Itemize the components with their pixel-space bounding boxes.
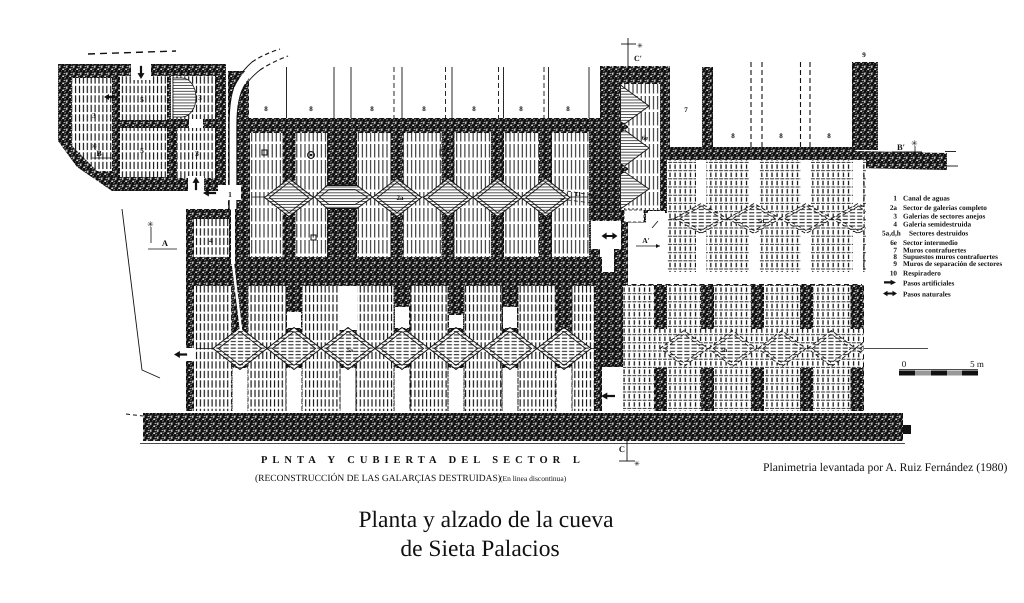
svg-text:8: 8 — [422, 105, 426, 113]
svg-text:8: 8 — [309, 105, 313, 113]
svg-text:Planimetria levantada por A. R: Planimetria levantada por A. Ruiz Fernán… — [763, 461, 1007, 474]
svg-text:Canal de aguas: Canal de aguas — [903, 195, 950, 203]
svg-text:1: 1 — [893, 195, 897, 203]
svg-text:A′: A′ — [642, 236, 650, 245]
svg-text:✳: ✳ — [911, 139, 918, 148]
svg-text:1: 1 — [228, 190, 232, 199]
svg-text:6e: 6e — [642, 135, 648, 142]
svg-text:8: 8 — [827, 132, 831, 140]
svg-text:5: 5 — [140, 95, 144, 104]
svg-text:Galeria semidestruida: Galeria semidestruida — [903, 221, 971, 229]
svg-text:(En linea discontinua): (En linea discontinua) — [500, 474, 567, 483]
svg-text:3: 3 — [195, 149, 199, 158]
svg-text:9: 9 — [893, 260, 897, 268]
svg-text:Sector de galerias completo: Sector de galerias completo — [903, 204, 987, 212]
svg-text:Pasos naturales: Pasos naturales — [903, 291, 951, 299]
svg-text:✳: ✳ — [147, 220, 154, 229]
svg-text:Muros de separación de sectore: Muros de separación de sectores — [903, 260, 1002, 268]
svg-text:Respiradero: Respiradero — [903, 269, 941, 277]
svg-text:3: 3 — [198, 93, 202, 102]
svg-text:A: A — [162, 238, 169, 248]
svg-text:C′: C′ — [634, 54, 642, 63]
svg-text:8: 8 — [779, 132, 783, 140]
svg-text:0: 0 — [902, 359, 907, 369]
svg-text:✳: ✳ — [637, 42, 643, 50]
svg-text:2a: 2a — [397, 194, 405, 202]
svg-text:3: 3 — [893, 212, 897, 220]
svg-text:4: 4 — [893, 221, 897, 229]
svg-text:Galerias de sectores anejos: Galerias de sectores anejos — [903, 212, 986, 220]
svg-text:2a: 2a — [890, 204, 898, 212]
svg-text:8: 8 — [731, 132, 735, 140]
svg-text:Pasos artificiales: Pasos artificiales — [903, 280, 955, 288]
svg-text:5a: 5a — [347, 348, 353, 354]
svg-text:4: 4 — [209, 236, 213, 245]
svg-text:5h: 5h — [721, 347, 728, 354]
svg-text:11: 11 — [575, 192, 581, 198]
svg-text:5 m: 5 m — [970, 359, 984, 369]
svg-text:5d: 5d — [758, 218, 765, 225]
svg-text:10: 10 — [890, 269, 898, 277]
svg-text:Sectores destruidos: Sectores destruidos — [909, 230, 968, 238]
svg-text:PLNTA Y CUBIERTA DEL SECTOR L: PLNTA Y CUBIERTA DEL SECTOR L — [261, 455, 585, 466]
svg-text:C: C — [619, 444, 625, 454]
svg-text:B: B — [96, 149, 102, 158]
svg-text:B′: B′ — [897, 142, 905, 152]
svg-text:8: 8 — [472, 105, 476, 113]
svg-text:✳: ✳ — [634, 460, 640, 468]
svg-text:Planta y alzado de la cueva: Planta y alzado de la cueva — [358, 507, 614, 533]
svg-text:8: 8 — [519, 105, 523, 113]
svg-text:5: 5 — [140, 146, 144, 155]
svg-text:3: 3 — [92, 111, 96, 120]
svg-text:5a,d,h: 5a,d,h — [882, 230, 901, 238]
svg-text:9: 9 — [862, 51, 866, 59]
svg-text:de Sieta Palacios: de Sieta Palacios — [400, 536, 559, 562]
svg-text:8: 8 — [370, 105, 374, 113]
svg-text:(RECONSTRUCCIÓN DE LAS GALARÇI: (RECONSTRUCCIÓN DE LAS GALARÇIAS DESTRUI… — [255, 472, 501, 484]
svg-text:8: 8 — [264, 105, 268, 113]
svg-text:7: 7 — [684, 106, 688, 114]
svg-text:8: 8 — [566, 105, 570, 113]
